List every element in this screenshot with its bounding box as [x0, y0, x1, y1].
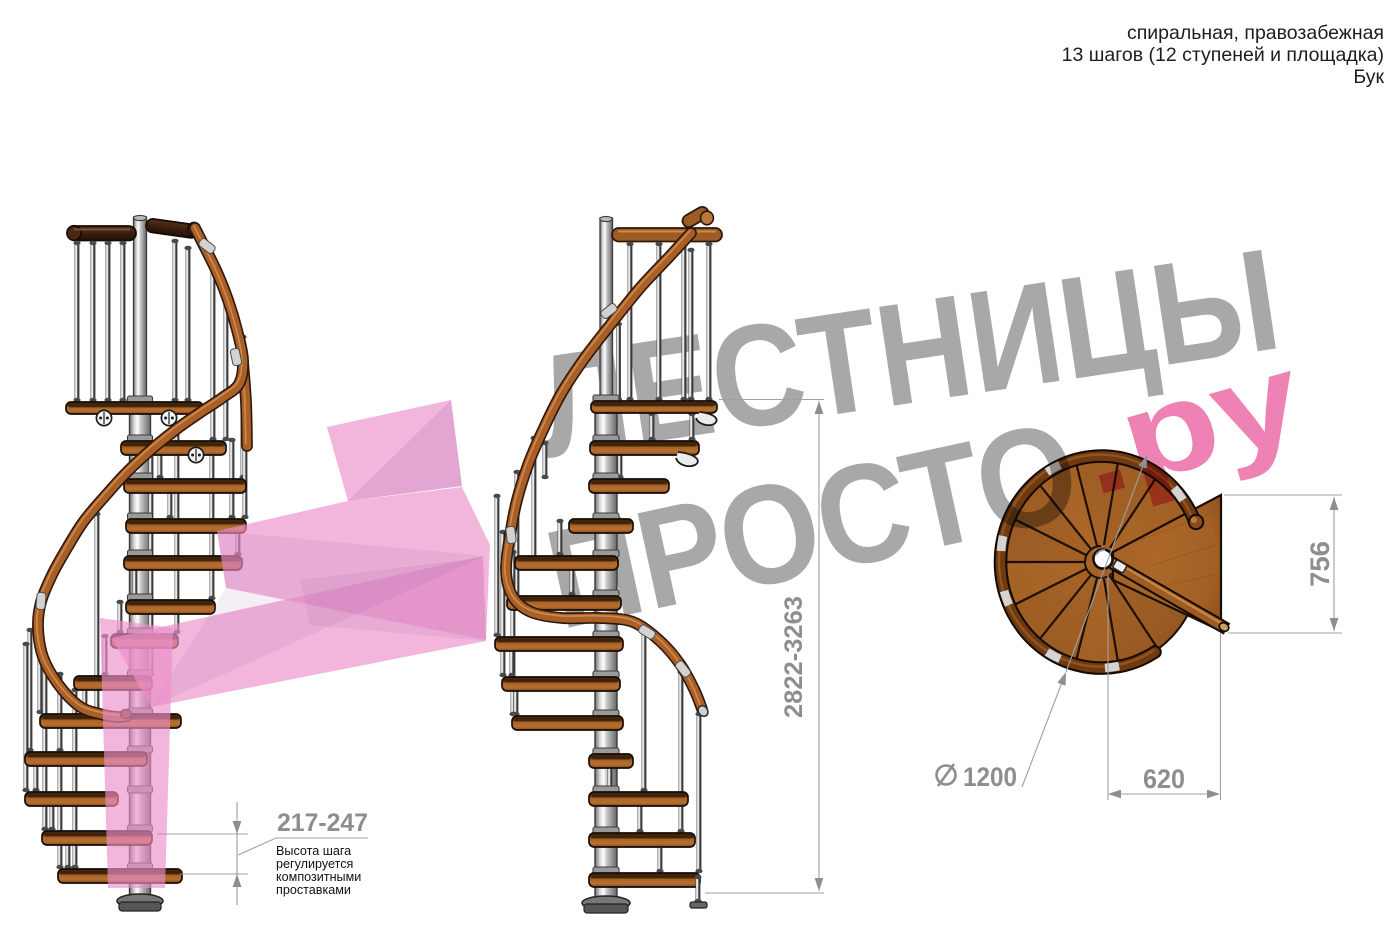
svg-text:композитными: композитными — [276, 870, 361, 884]
svg-text:регулируется: регулируется — [276, 857, 353, 871]
svg-text:756: 756 — [1305, 541, 1335, 587]
svg-text:217-247: 217-247 — [277, 809, 368, 837]
svg-text:спиральная, правозабежная: спиральная, правозабежная — [1127, 22, 1384, 44]
svg-text:Высота шага: Высота шага — [276, 844, 351, 858]
svg-text:Бук: Бук — [1353, 66, 1384, 88]
svg-text:2822-3263: 2822-3263 — [780, 596, 808, 718]
svg-text:1200: 1200 — [963, 762, 1017, 792]
svg-text:620: 620 — [1143, 764, 1185, 794]
svg-text:13 шагов (12 ступеней и площад: 13 шагов (12 ступеней и площадка) — [1062, 44, 1384, 66]
svg-text:проставками: проставками — [276, 883, 351, 897]
